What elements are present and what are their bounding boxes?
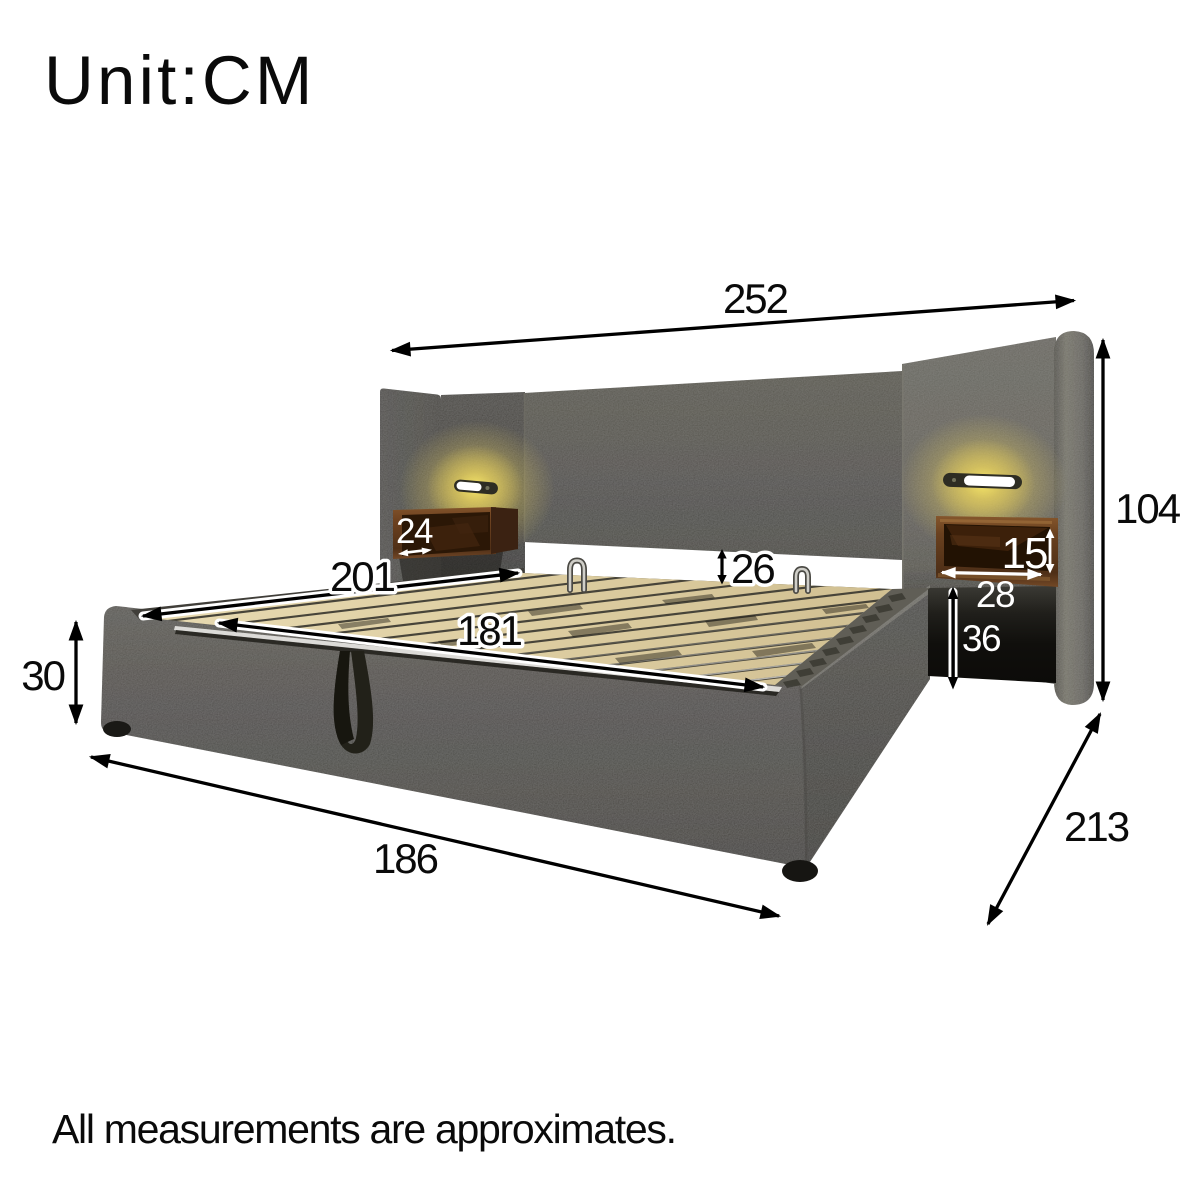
svg-text:252: 252	[723, 275, 788, 322]
svg-text:15: 15	[1002, 529, 1047, 578]
svg-text:26: 26	[731, 545, 774, 592]
svg-text:24: 24	[396, 512, 433, 551]
svg-text:All measurements are approxima: All measurements are approximates.	[52, 1106, 677, 1152]
svg-text:28: 28	[976, 574, 1014, 615]
svg-text:181: 181	[457, 607, 522, 654]
svg-text:186: 186	[373, 835, 438, 882]
svg-text:213: 213	[1064, 803, 1129, 850]
svg-text:201: 201	[330, 553, 395, 600]
svg-text:104: 104	[1115, 485, 1181, 532]
svg-text:36: 36	[962, 618, 1000, 659]
svg-text:Unit:CM: Unit:CM	[44, 42, 316, 119]
svg-text:30: 30	[21, 652, 64, 699]
